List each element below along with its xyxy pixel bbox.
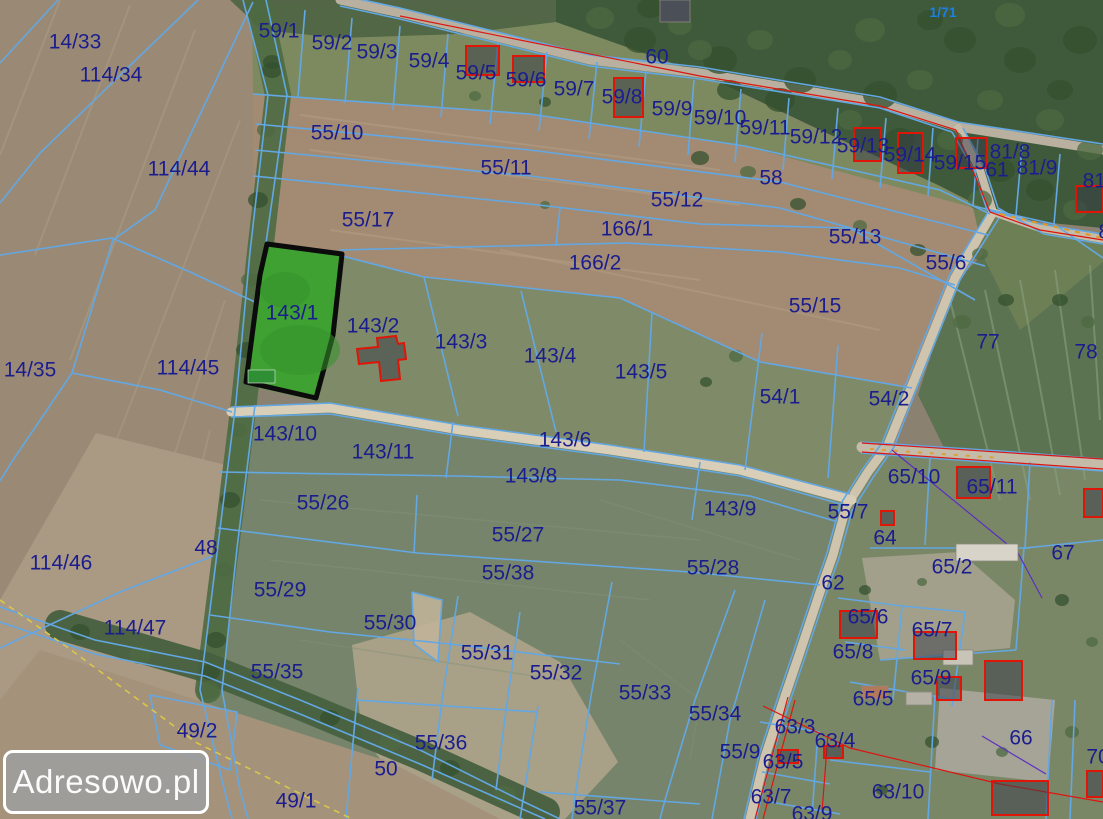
parcel-label: 143/1 [266,302,319,325]
parcel-label: 61 [985,159,1008,182]
building-65-9b [985,661,1022,700]
parcel-label: 114/46 [30,552,93,575]
parcel-label: 166/2 [569,252,622,275]
parcel-label: 81/9 [1017,157,1058,180]
parcel-label: 59/4 [409,50,450,73]
parcel-label: 59/5 [456,62,497,85]
tree-icon [206,632,226,648]
parcel-label: 55/10 [311,122,364,145]
parcel-label: 55/37 [574,797,627,819]
parcel-label: 14/33 [49,31,102,54]
tree-icon [1004,47,1036,73]
parcel-label: 143/5 [615,361,668,384]
tree-icon [953,315,971,329]
tree-icon [859,585,871,595]
parcel-label: 55/28 [687,557,740,580]
parcel-label: 143/6 [539,429,592,452]
tree-icon [691,151,709,165]
parcel-label: 114/44 [148,158,211,181]
parcel-label: 59/10 [694,107,747,130]
adresowo-logo: Adresowo.pl [3,750,209,814]
parcel-label: 59/8 [602,86,643,109]
parcel-label: 59/7 [554,78,595,101]
parcel-label: 65/6 [848,606,889,629]
parcel-label: 54/2 [869,388,910,411]
tree-icon [215,563,233,577]
parcel-label: 55/15 [789,295,842,318]
tree-icon [700,377,712,387]
parcel-label: 81/5 [1083,170,1103,193]
parcel-label: 63/3 [775,716,816,739]
parcel-label: 78 [1074,341,1097,364]
parcel-label: 55/33 [619,682,672,705]
tree-icon [784,67,816,93]
parcel-label: 65/8 [833,641,874,664]
tree-icon [740,166,756,178]
tree-icon [855,18,885,42]
parcel-label: 63/7 [751,786,792,809]
parcel-label: 59/2 [312,32,353,55]
building-edge-east [1087,771,1103,797]
tree-icon [688,40,712,60]
parcel-label: 55/38 [482,562,535,585]
parcel-label: 65/11 [967,476,1018,499]
parcel-label: 55/13 [829,226,882,249]
parcel-label: 55/27 [492,524,545,547]
parcel-label: 55/30 [364,612,417,635]
parcel-label: 59/14 [884,144,937,167]
tree-icon [907,70,933,90]
parcel-label: 81 [1098,221,1103,244]
building-67 [1084,489,1103,517]
building-63-10 [992,781,1048,815]
parcel-label: 114/45 [157,357,220,380]
parcel-label: 166/1 [601,218,654,241]
tree-icon [248,192,268,208]
parcel-label: 59/11 [740,117,791,140]
parcel-label: 55/32 [530,662,583,685]
parcel-label: 65/10 [888,466,941,489]
tree-icon [1026,179,1054,201]
parcel-label: 65/5 [853,688,894,711]
parcel-label: 55/17 [342,209,395,232]
tree-icon [944,27,976,53]
parcel-label: 55/29 [254,579,307,602]
parcel-label: 54/1 [760,386,801,409]
tree-icon [828,50,852,70]
map-canvas[interactable]: 14/33114/34114/4414/35114/45114/46114/47… [0,0,1103,819]
parcel-label: 65/7 [912,619,953,642]
parcel-label: 55/11 [481,157,532,180]
parcel-label: 59/6 [506,69,547,92]
parcel-label: 14/35 [4,359,57,382]
parcel-label: 114/47 [104,617,167,640]
tree-icon [1065,726,1079,738]
building-66-shed-b [906,692,932,705]
building-64-marker [881,511,894,525]
tree-icon [1063,26,1097,54]
parcel-label: 66 [1009,727,1032,750]
parcel-label: 55/36 [415,732,468,755]
parcel-label: 143/9 [704,498,757,521]
parcel-label: 59/9 [652,98,693,121]
parcel-label: 59/13 [837,135,890,158]
tree-icon [1055,594,1069,606]
parcel-label: 143/3 [435,331,488,354]
tree-icon [586,7,614,29]
parcel-label: 143/11 [352,441,415,464]
tree-icon [917,578,927,586]
parcel-label: 64 [873,527,897,550]
parcel-label: 143/2 [347,315,400,338]
adresowo-logo-text: Adresowo.pl [12,763,199,801]
tree-icon [995,3,1025,27]
for-sale-sign [248,370,275,383]
parcel-label: 55/12 [651,189,704,212]
tree-icon [1036,109,1064,131]
parcel-label: 1/71 [929,4,956,20]
parcel-label: 65/2 [932,556,973,579]
cadastral-map-svg: 14/33114/34114/4414/35114/45114/46114/47… [0,0,1103,819]
parcel-label: 55/7 [828,501,869,524]
tree-icon [469,91,481,101]
parcel-label: 55/34 [689,703,742,726]
parcel-label: 77 [976,331,999,354]
parcel-label: 55/9 [720,741,761,764]
parcel-label: 143/8 [505,465,558,488]
parcel-label: 49/2 [177,720,218,743]
parcel-label: 59/15 [934,152,987,175]
parcel-label: 63/5 [763,751,804,774]
parcel-label: 55/31 [461,642,514,665]
parcel-label: 59/3 [357,41,398,64]
tree-icon [1086,637,1098,647]
parcel-label: 63/10 [872,781,925,804]
parcel-label: 63/9 [792,803,833,819]
parcel-label: 70 [1086,746,1103,769]
parcel-label: 49/1 [276,790,317,813]
tree-icon [747,30,773,50]
parcel-label: 48 [194,537,217,560]
parcel-label: 143/10 [253,423,317,446]
parcel-label: 62 [821,572,844,595]
parcel-label: 55/26 [297,492,350,515]
parcel-label: 55/35 [251,661,304,684]
tree-icon [1081,316,1095,328]
parcel-label: 63/4 [815,730,856,753]
parcel-label: 59/12 [790,126,843,149]
parcel-label: 58 [759,167,782,190]
building-forest-shed [660,0,690,22]
parcel-label: 65/9 [911,667,952,690]
tree-icon [1052,294,1068,306]
parcel-label: 114/34 [80,64,143,87]
parcel-label: 60 [645,46,668,69]
tree-icon [998,294,1014,306]
tree-icon [1047,80,1073,100]
tree-icon [790,198,806,210]
parcel-label: 59/1 [259,20,300,43]
parcel-label: 143/4 [524,345,577,368]
parcel-label: 50 [374,758,397,781]
tree-icon [977,90,1003,110]
parcel-label: 67 [1051,542,1074,565]
parcel-label: 55/6 [926,252,967,275]
highlight-grass-blotch [260,325,340,375]
